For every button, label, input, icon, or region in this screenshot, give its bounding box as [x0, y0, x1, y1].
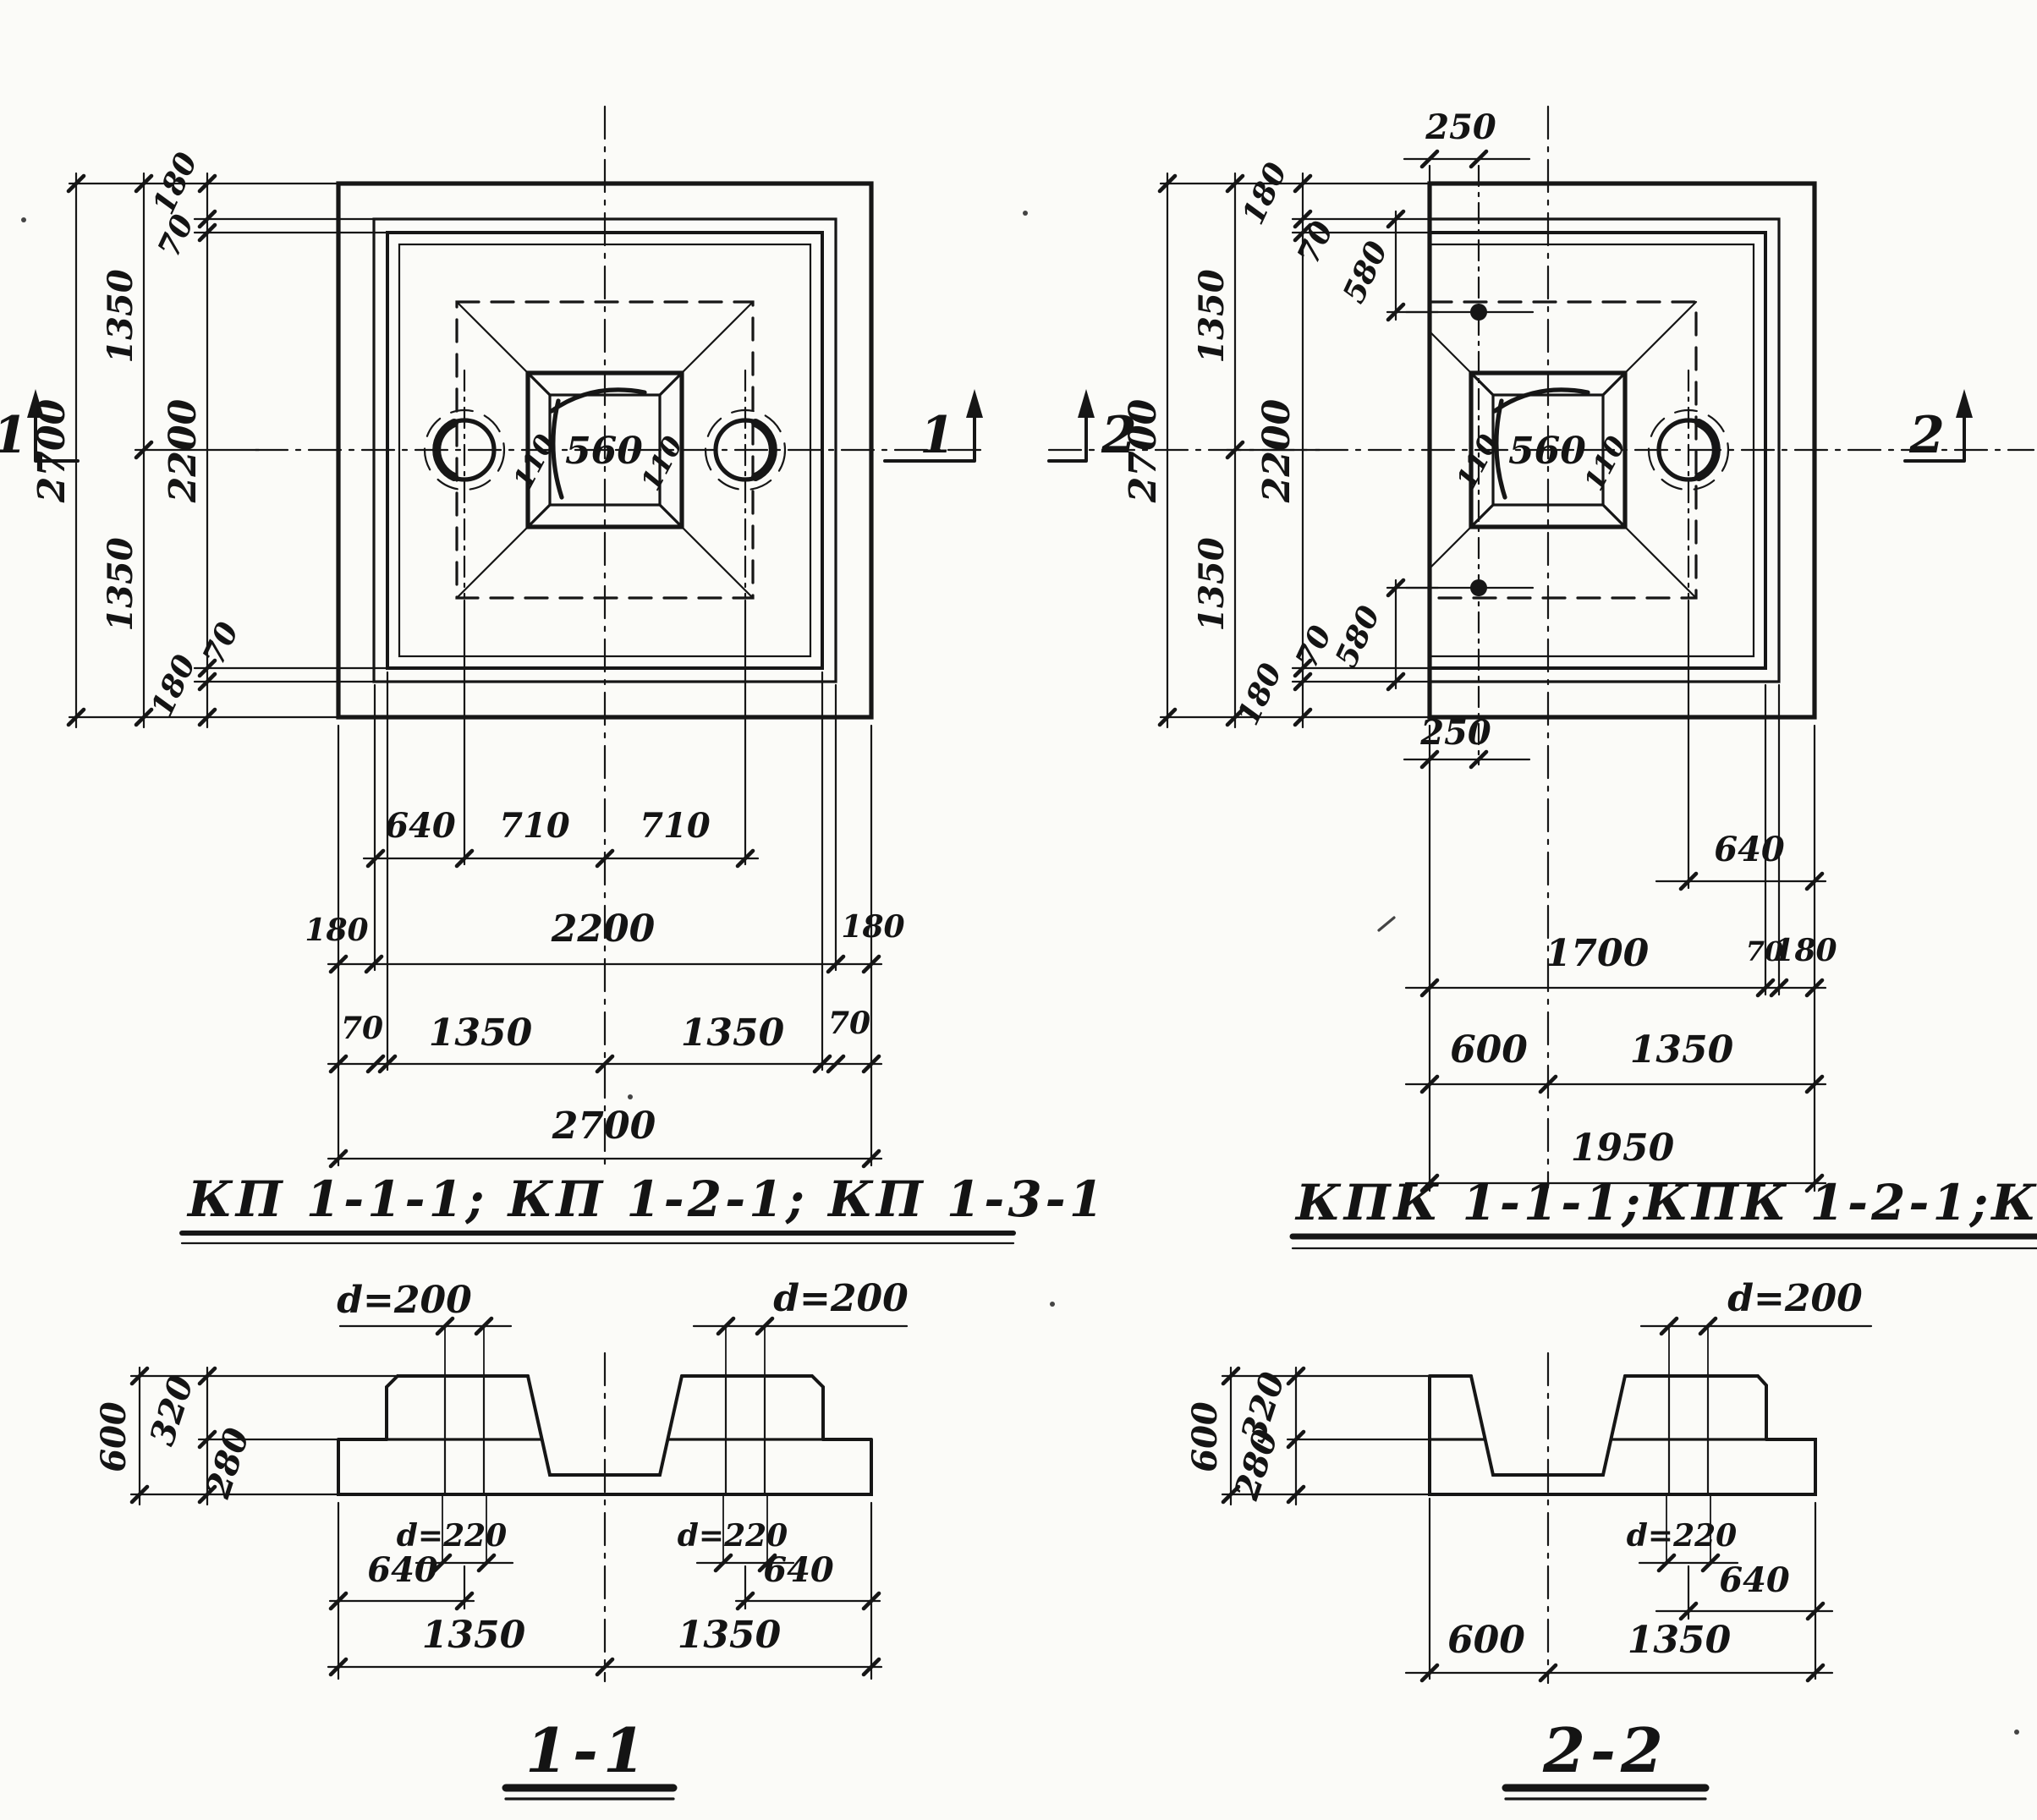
dim-r-half-width: 1350	[1630, 1028, 1734, 1072]
dim-s2-slab-height: 280	[1227, 1425, 1287, 1505]
section-mark-2-left-arrow	[1078, 389, 1095, 418]
dim-r-inner-height: 2200	[1255, 398, 1299, 503]
title-right: КПК 1-1-1;КПК 1-2-1;КПК 1-3-1	[1294, 1174, 2037, 1231]
dim-cut-width: 600	[1450, 1028, 1528, 1072]
section-mark-2-right-arrow	[1956, 389, 1973, 418]
plan-right-dim-250-top	[1404, 159, 1529, 184]
section-mark-1-right-label: 1	[920, 406, 955, 465]
dim-top-offset: 250	[1425, 107, 1496, 147]
dim-s2-cut-width: 600	[1447, 1619, 1525, 1662]
noise-dot	[1023, 211, 1028, 216]
dim-total-height: 2700	[30, 398, 74, 503]
dim-s1-half-right: 1350	[678, 1614, 782, 1657]
section-mark-2-right-label: 2	[1908, 406, 1945, 465]
dim-s2-640: 640	[1719, 1560, 1790, 1600]
dim-r-wall-top: 180	[1235, 157, 1294, 230]
noise-dot	[1050, 1302, 1055, 1307]
dim-gap-top: 70	[151, 209, 201, 262]
dim-d200-left: d=200	[337, 1279, 472, 1322]
dim-gap-bottom: 70	[196, 617, 246, 670]
dim-r-hole-offset: 640	[1714, 830, 1785, 869]
dim-s1-640-right: 640	[763, 1550, 834, 1590]
dim-r-socket: 560	[1508, 430, 1586, 473]
dim-wall-right: 180	[841, 909, 904, 945]
dim-body-width: 1700	[1546, 932, 1650, 975]
dim-hole-center-a: 710	[499, 806, 570, 846]
dim-inner-width: 2200	[551, 907, 656, 951]
section2-pipes	[1669, 1376, 1708, 1494]
plan-right-ext-bottom	[1430, 600, 1815, 1191]
dim-s2-d220: d=220	[1627, 1518, 1737, 1554]
dim-wall-bottom: 180	[144, 650, 203, 722]
noise-tick	[1379, 918, 1394, 930]
dim-r-gap-bottom: 70	[1289, 620, 1339, 673]
dim-half-right: 1350	[681, 1011, 785, 1055]
section-mark-1-right-arrow	[966, 389, 983, 418]
dim-half-left: 1350	[429, 1011, 533, 1055]
dim-s1-height: 600	[94, 1401, 134, 1472]
dim-inner-height: 2200	[162, 398, 205, 503]
dim-s2-half-width: 1350	[1628, 1619, 1732, 1662]
noise-dot	[21, 217, 26, 222]
dim-half-top: 1350	[101, 269, 140, 363]
titles: КП 1-1-1; КП 1-2-1; КП 1-3-1 КПК 1-1-1;К…	[182, 1170, 2037, 1248]
section-mark-1-left-label: 1	[0, 406, 28, 465]
dim-hole-offset: 640	[385, 806, 456, 846]
dim-s1-640-left: 640	[367, 1550, 438, 1590]
plan-right: 2 2 250 2700 1350 1350 180 70 2200 70 18…	[1049, 107, 2034, 1191]
dim-socket: 560	[565, 430, 643, 473]
dim-s1-top-height: 320	[142, 1371, 202, 1450]
section1-label: 1-1	[525, 1714, 651, 1786]
dim-s2-height: 600	[1185, 1401, 1225, 1472]
dim-d220-right: d=220	[678, 1518, 788, 1554]
dim-gap-left: 70	[341, 1011, 383, 1046]
dim-d200-right: d=200	[773, 1277, 909, 1320]
dim-anchor-top: 580	[1336, 236, 1395, 309]
dim-r-half-top: 1350	[1192, 269, 1232, 363]
dim-r-wall-bottom: 180	[1230, 658, 1289, 731]
noise-dot	[628, 1094, 633, 1099]
dim-r-total-height: 2700	[1122, 398, 1165, 503]
section2-label: 2-2	[1542, 1714, 1668, 1786]
section-2-2: d=200 600 320 280 d=220 640 600 1350 2-2	[1185, 1277, 1871, 1799]
dim-r-half-bottom: 1350	[1192, 537, 1232, 631]
dim-d220-left: d=220	[397, 1518, 507, 1554]
dim-wall-left: 180	[305, 913, 368, 948]
plan-left: 1 1 2700 1350 1350 180 70 2200 70 180 11…	[0, 107, 983, 1167]
dim-r-total-width: 1950	[1571, 1127, 1675, 1170]
noise-dot	[2014, 1730, 2019, 1735]
section-1-1: d=200 d=200 600 320 280 d=220 d=220 640 …	[94, 1277, 909, 1799]
dim-s1-half-left: 1350	[422, 1614, 526, 1657]
dim-s2-d200: d=200	[1727, 1277, 1863, 1320]
dim-half-bottom: 1350	[101, 537, 140, 631]
foundation-drawing: 1 1 2700 1350 1350 180 70 2200 70 180 11…	[0, 0, 2037, 1820]
blueprint-page: 1 1 2700 1350 1350 180 70 2200 70 180 11…	[0, 0, 2037, 1820]
dim-gap-right: 70	[828, 1006, 870, 1041]
dim-hole-center-b: 710	[640, 806, 711, 846]
scan-noise	[21, 211, 2019, 1735]
title-left: КП 1-1-1; КП 1-2-1; КП 1-3-1	[186, 1170, 1106, 1228]
dim-total-width: 2700	[552, 1105, 656, 1148]
dim-r-wall-right: 180	[1773, 933, 1837, 968]
